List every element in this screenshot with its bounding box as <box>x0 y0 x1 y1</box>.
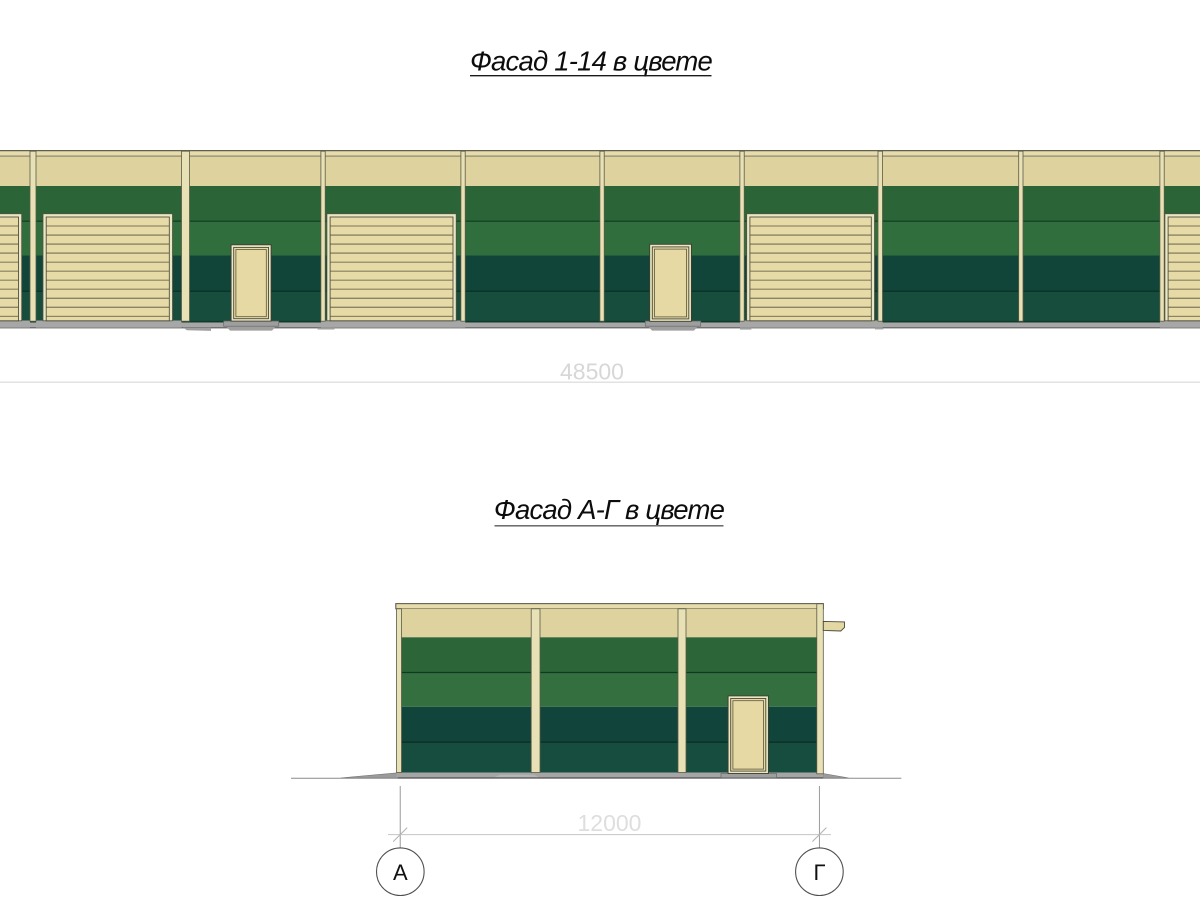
svg-text:48500: 48500 <box>560 359 624 385</box>
svg-text:А: А <box>393 860 408 885</box>
svg-text:12000: 12000 <box>578 810 642 836</box>
svg-text:Г: Г <box>813 860 825 885</box>
svg-text:Фасад А-Г в цвете: Фасад А-Г в цвете <box>494 494 725 525</box>
svg-text:Фасад 1-14 в цвете: Фасад 1-14 в цвете <box>470 46 712 77</box>
